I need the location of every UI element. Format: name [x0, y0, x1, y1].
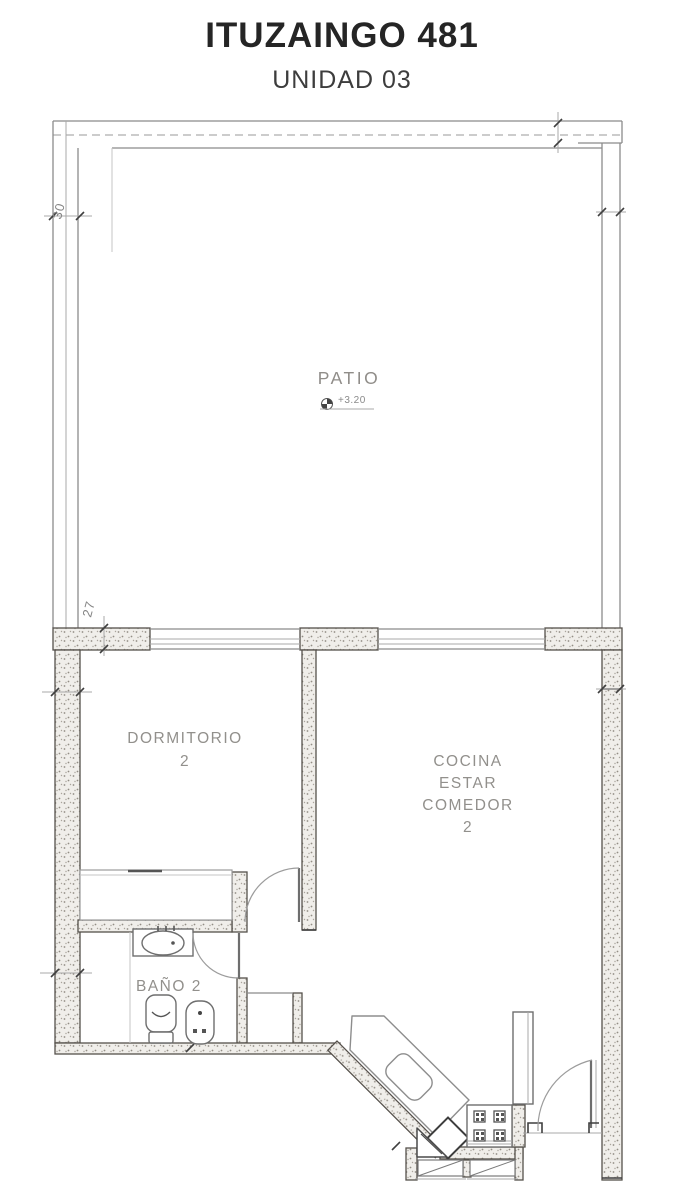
- level-value: +3.20: [338, 395, 366, 406]
- room-label-cocina: COCINA ESTAR COMEDOR 2: [422, 753, 513, 836]
- window-dormitorio: [150, 629, 300, 649]
- svg-text:2: 2: [463, 819, 473, 836]
- svg-text:2: 2: [180, 753, 190, 770]
- fridge-counter: [513, 1012, 533, 1104]
- svg-text:DORMITORIO: DORMITORIO: [127, 730, 242, 747]
- closet: [80, 870, 232, 920]
- toilet-fixture: [146, 995, 176, 1043]
- bedroom-door: [245, 868, 299, 922]
- dimension-top-right-ticks: [554, 112, 626, 216]
- room-label-banio: BAÑO 2: [136, 978, 202, 995]
- dim-label-27: 27: [79, 599, 98, 619]
- level-marker: +3.20: [320, 395, 374, 410]
- entrance-door: [523, 1060, 602, 1133]
- bathroom-vanity: [133, 926, 193, 956]
- bathroom-door: [193, 933, 239, 978]
- floor-plan-svg: 30 PATIO +3.20 27: [0, 0, 684, 1200]
- kitchen-stove: [467, 1105, 512, 1147]
- svg-text:ESTAR: ESTAR: [439, 775, 497, 792]
- svg-text:BAÑO 2: BAÑO 2: [136, 978, 202, 995]
- room-label-dormitorio: DORMITORIO 2: [127, 730, 242, 770]
- window-cocina: [378, 629, 545, 649]
- bidet-fixture: [186, 1001, 214, 1044]
- dim-label-30: 30: [49, 201, 68, 221]
- svg-text:COMEDOR: COMEDOR: [422, 797, 513, 814]
- grille-right: [467, 1160, 518, 1179]
- patio-label: PATIO: [318, 368, 380, 388]
- dimension-top-left-30: 30: [44, 201, 92, 221]
- room-label-patio: PATIO: [318, 368, 380, 388]
- svg-text:COCINA: COCINA: [433, 753, 502, 770]
- grille-left: [415, 1160, 466, 1179]
